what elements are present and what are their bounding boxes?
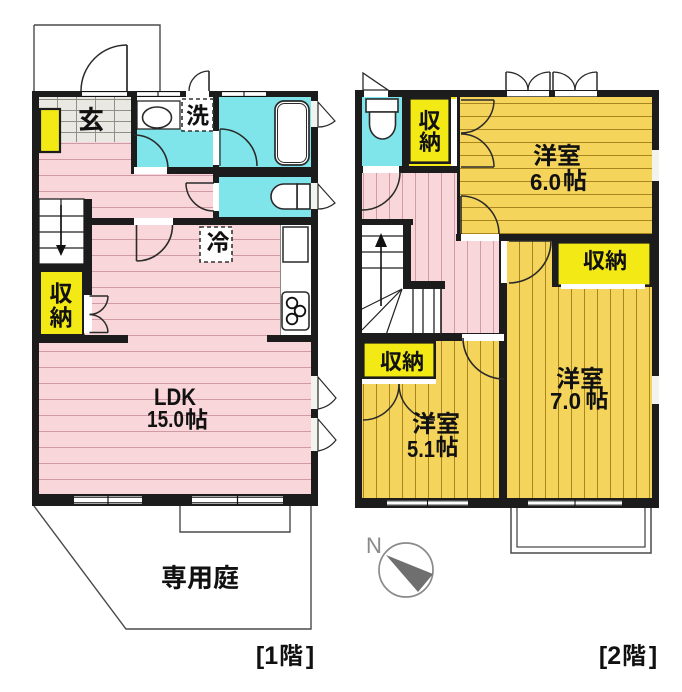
svg-text:]: ] — [306, 642, 314, 670]
svg-text:[2: [2 — [599, 642, 621, 670]
svg-text:5.1: 5.1 — [407, 436, 435, 462]
svg-text:]: ] — [649, 642, 657, 670]
svg-text:[1: [1 — [256, 642, 278, 670]
svg-text:7.0: 7.0 — [550, 388, 581, 414]
svg-text:15.0: 15.0 — [147, 406, 184, 432]
svg-text:N: N — [366, 533, 382, 558]
svg-text:6.0: 6.0 — [530, 169, 561, 195]
